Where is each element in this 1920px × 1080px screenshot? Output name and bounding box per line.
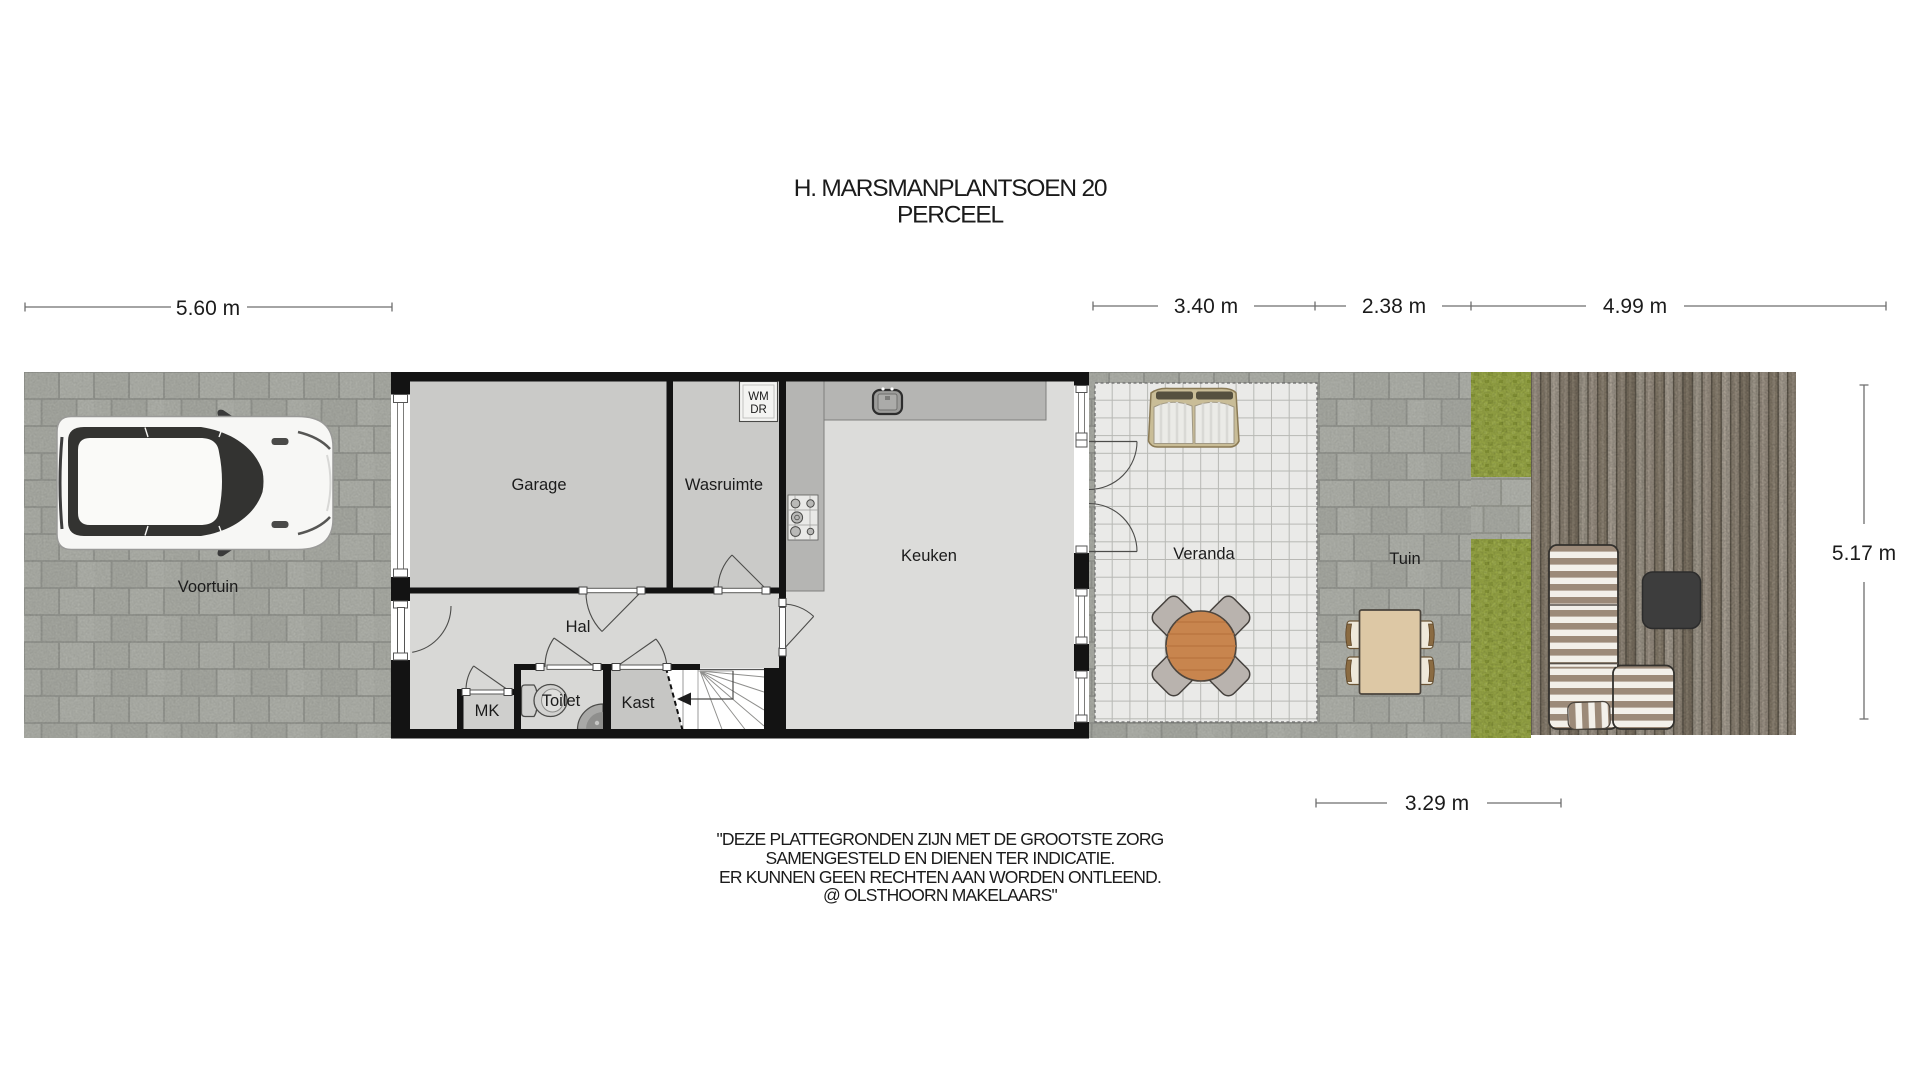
svg-text:"DEZE PLATTEGRONDEN ZIJN MET D: "DEZE PLATTEGRONDEN ZIJN MET DE GROOTSTE… <box>717 829 1164 849</box>
svg-text:Wasruimte: Wasruimte <box>685 476 763 494</box>
svg-text:Tuin: Tuin <box>1389 550 1421 568</box>
svg-text:SAMENGESTELD EN DIENEN TER IND: SAMENGESTELD EN DIENEN TER INDICATIE. <box>766 848 1115 868</box>
svg-text:Kast: Kast <box>621 694 654 712</box>
svg-text:3.29 m: 3.29 m <box>1405 792 1469 815</box>
svg-text:5.60 m: 5.60 m <box>176 297 240 320</box>
svg-text:2.38 m: 2.38 m <box>1362 295 1426 318</box>
svg-text:@ OLSTHOORN MAKELAARS": @ OLSTHOORN MAKELAARS" <box>823 885 1058 905</box>
svg-text:Toilet: Toilet <box>542 692 581 710</box>
svg-text:3.40 m: 3.40 m <box>1174 295 1238 318</box>
svg-text:Hal: Hal <box>566 618 591 636</box>
svg-text:DR: DR <box>750 404 767 416</box>
svg-text:MK: MK <box>475 702 500 720</box>
svg-text:ER KUNNEN GEEN RECHTEN AAN WOR: ER KUNNEN GEEN RECHTEN AAN WORDEN ONTLEE… <box>719 867 1161 887</box>
svg-text:WM: WM <box>748 391 768 403</box>
svg-text:Keuken: Keuken <box>901 547 957 565</box>
svg-text:Veranda: Veranda <box>1173 545 1235 563</box>
svg-text:5.17 m: 5.17 m <box>1832 542 1896 565</box>
svg-text:PERCEEL: PERCEEL <box>897 202 1004 229</box>
svg-text:Voortuin: Voortuin <box>178 578 239 596</box>
svg-text:4.99 m: 4.99 m <box>1603 295 1667 318</box>
svg-text:H. MARSMANPLANTSOEN 20: H. MARSMANPLANTSOEN 20 <box>794 175 1107 202</box>
svg-text:Garage: Garage <box>511 476 566 494</box>
